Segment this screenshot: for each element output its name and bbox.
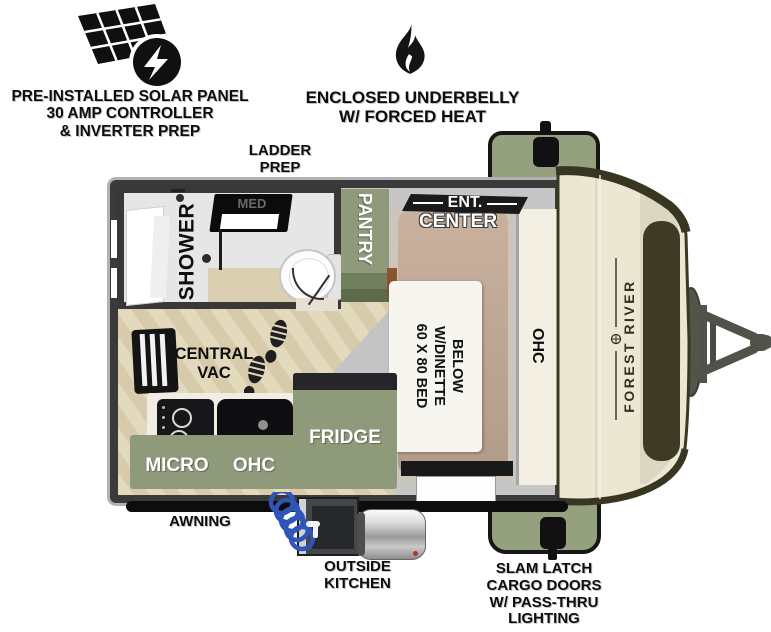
cargo-doors-line: SLAM LATCH	[469, 561, 619, 578]
cooktop-knob	[162, 406, 165, 409]
pantry-base	[341, 289, 389, 302]
bed-label-line: BELOW	[448, 276, 466, 456]
burner	[172, 408, 192, 428]
entry-step	[416, 476, 496, 504]
outside-kitchen-label: OUTSIDE KITCHEN	[305, 559, 410, 593]
fridge-top	[293, 373, 397, 390]
shower-label: SHOWER	[175, 197, 198, 307]
underbelly-line: W/ FORCED HEAT	[285, 107, 540, 126]
towel-bar-icon	[171, 189, 185, 192]
solar-line: PRE-INSTALLED SOLAR PANEL	[0, 88, 260, 105]
bed-label-line: W/DINETTE	[430, 276, 448, 456]
cargo-doors-label: SLAM LATCH CARGO DOORS W/ PASS-THRU LIGH…	[469, 561, 619, 628]
sink-drain	[258, 420, 268, 430]
solar-line: & INVERTER PREP	[0, 123, 260, 140]
cooktop-knob	[162, 416, 165, 419]
solar-line: 30 AMP CONTROLLER	[0, 105, 260, 122]
bathroom-door-opening	[296, 298, 338, 311]
pantry-label: PANTRY	[354, 184, 374, 274]
fridge-label: FRIDGE	[295, 428, 395, 449]
underbelly-line: ENCLOSED UNDERBELLY	[285, 88, 540, 107]
cooktop-knob	[162, 426, 165, 429]
ohc-bedside-label: OHC	[528, 316, 546, 376]
underbelly-label: ENCLOSED UNDERBELLY W/ FORCED HEAT	[285, 88, 540, 126]
med-cabinet-post	[219, 230, 222, 270]
flame-icon	[386, 20, 434, 78]
med-cabinet-door	[220, 214, 279, 229]
water-heater-valve	[413, 551, 418, 556]
trailer-front-cap: FOREST RIVER	[550, 125, 771, 525]
bed-label: BELOW W/DINETTE 60 X 80 BED	[406, 276, 466, 456]
bed-footboard	[401, 461, 513, 476]
outside-kitchen-line: KITCHEN	[305, 576, 410, 593]
water-hose-icon	[262, 492, 326, 556]
brand-label: FOREST RIVER	[621, 279, 637, 412]
drain-icon	[202, 254, 211, 263]
awning-label: AWNING	[150, 514, 250, 531]
ladder-line: PREP	[230, 160, 330, 177]
center-label: CENTER	[408, 212, 508, 233]
floorplan-diagram: MED SHOWER PANTRY OHC ENT. CENTER BELOW …	[0, 0, 771, 632]
bed-label-line: 60 X 80 BED	[412, 276, 430, 456]
kitchen-ohc-label: OHC	[222, 456, 286, 477]
hitch-icon	[679, 288, 771, 396]
cargo-doors-line: CARGO DOORS	[469, 578, 619, 595]
water-heater-cap	[357, 512, 365, 556]
micro-label: MICRO	[134, 456, 220, 477]
cargo-doors-line: W/ PASS-THRU	[469, 595, 619, 612]
ladder-prep-label: LADDER PREP	[230, 143, 330, 177]
solar-panel-icon	[60, 0, 190, 90]
med-label: MED	[228, 197, 276, 211]
outside-kitchen-line: OUTSIDE	[305, 559, 410, 576]
cargo-door-bottom-latch-icon	[548, 548, 557, 560]
pantry-shade	[341, 273, 389, 289]
solar-label: PRE-INSTALLED SOLAR PANEL 30 AMP CONTROL…	[0, 88, 260, 140]
cap-window	[643, 221, 680, 461]
cargo-doors-line: LIGHTING	[469, 611, 619, 628]
ladder-line: LADDER	[230, 143, 330, 160]
ent-label: ENT.	[428, 194, 502, 212]
